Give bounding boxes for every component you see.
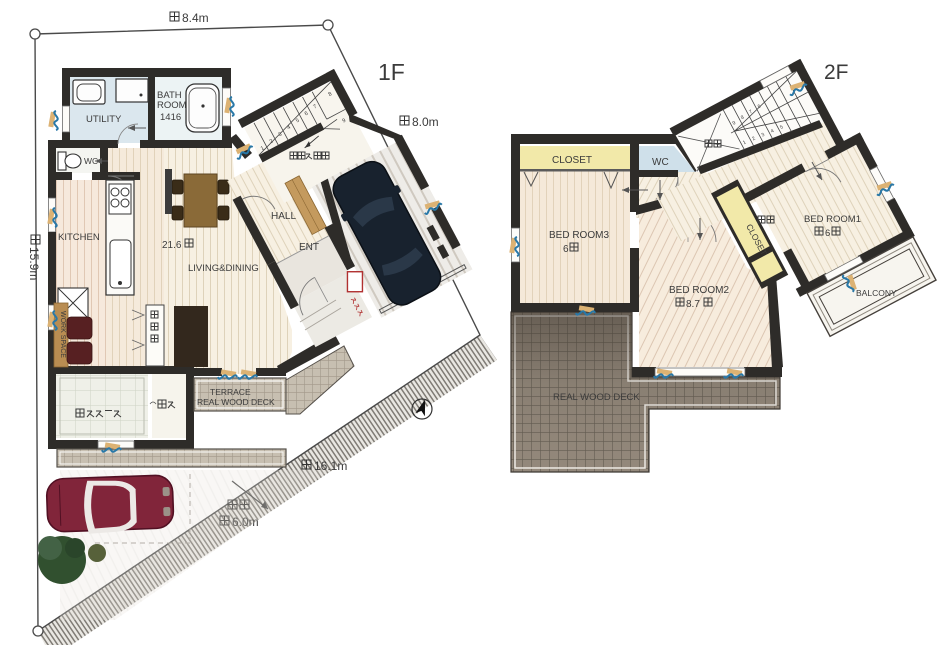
svg-text:ENT: ENT [299,242,319,253]
svg-text:UTILITY: UTILITY [86,114,122,125]
svg-text:6: 6 [825,228,830,239]
svg-text:15.9m: 15.9m [27,247,41,280]
svg-text:1416: 1416 [160,112,181,123]
svg-text:REAL WOOD DECK: REAL WOOD DECK [197,397,275,407]
svg-text:WC: WC [652,157,669,168]
svg-text:BALCONY: BALCONY [856,288,897,298]
svg-text:BED ROOM2: BED ROOM2 [669,285,729,296]
svg-text:BED ROOM1: BED ROOM1 [804,214,861,225]
svg-text:KITCHEN: KITCHEN [58,232,100,243]
svg-text:8.4m: 8.4m [182,11,209,25]
svg-text:CLOSET: CLOSET [552,155,592,166]
svg-text:WORK SPACE: WORK SPACE [59,311,66,358]
svg-text:REAL WOOD DECK: REAL WOOD DECK [553,392,640,403]
svg-text:TERRACE: TERRACE [210,387,251,397]
svg-text:6: 6 [563,244,569,255]
svg-text:HALL: HALL [271,211,296,222]
svg-text:8.0m: 8.0m [412,115,439,129]
svg-text:ROOM: ROOM [157,100,187,111]
svg-text:8.7: 8.7 [686,299,700,310]
svg-text:2F: 2F [824,61,849,84]
svg-text:21.6: 21.6 [162,240,182,251]
svg-text:BED ROOM3: BED ROOM3 [549,230,609,241]
svg-text:1F: 1F [378,59,405,85]
svg-text:LIVING&DINING: LIVING&DINING [188,263,259,274]
